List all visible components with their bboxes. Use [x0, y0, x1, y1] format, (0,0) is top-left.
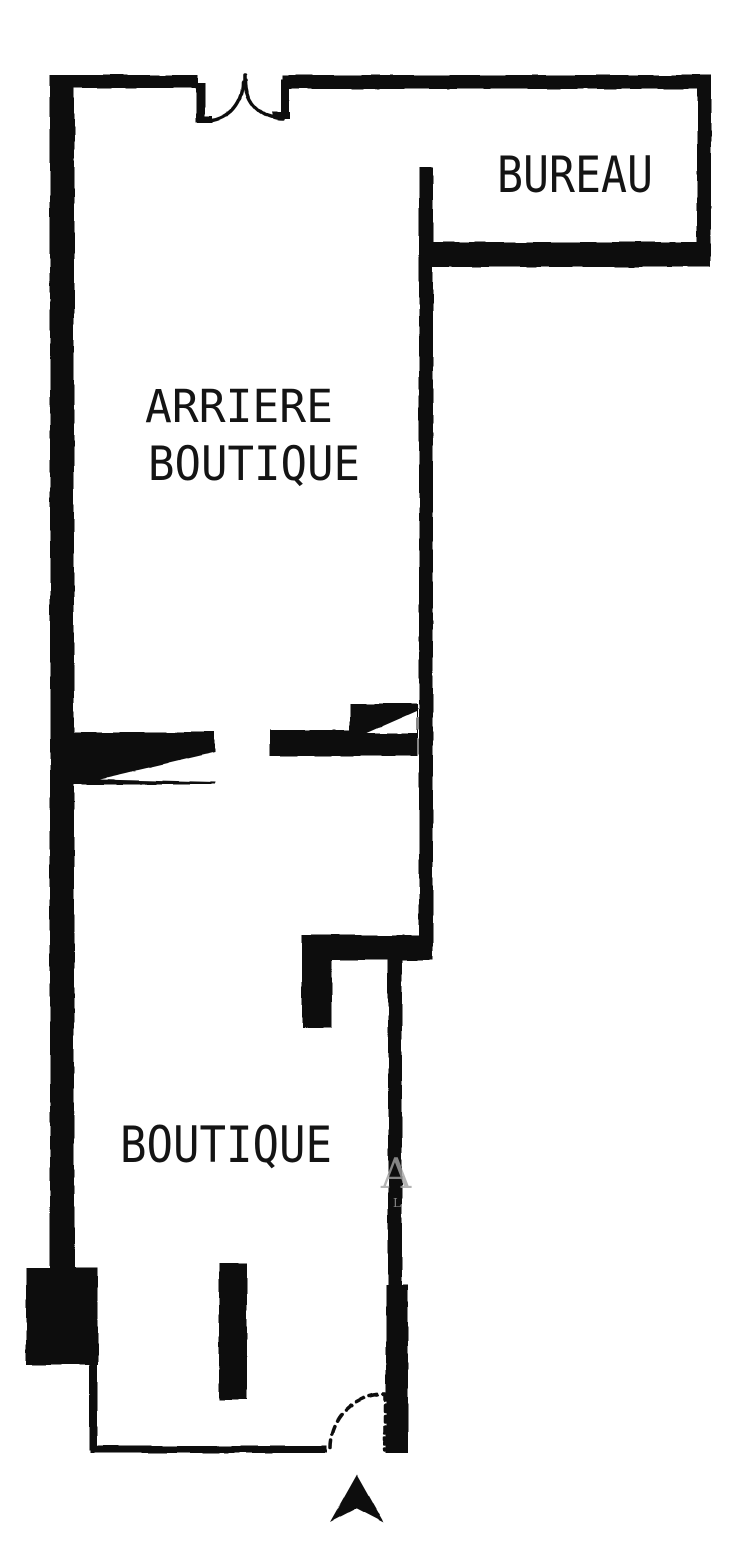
boutique-right-wall-bottom	[386, 1285, 408, 1453]
boutique-right-wall	[388, 958, 402, 1288]
room-label-boutique: BOUTIQUE	[120, 1116, 332, 1174]
left-exterior-wall	[50, 75, 74, 1273]
floor-plan-drawing: BUREAU ARRIERE BOUTIQUE BOUTIQUE A L	[0, 0, 744, 1554]
jog-wall	[302, 935, 433, 960]
north-arrow-icon	[330, 1474, 384, 1522]
top-wall-right	[283, 75, 711, 89]
entry-door-arc	[330, 1394, 384, 1448]
watermark-letter-l: L	[393, 1196, 401, 1210]
stub-wall	[302, 958, 332, 1028]
right-exterior-wall	[697, 75, 711, 267]
double-door-left-arc	[205, 83, 243, 121]
room-label-arriere-boutique-line2: BOUTIQUE	[148, 437, 360, 492]
watermark-letter-a: A	[380, 1149, 412, 1198]
left-front-thin-wall	[89, 1362, 97, 1450]
front-wall	[90, 1446, 327, 1453]
structure	[26, 75, 711, 1522]
room-label-arriere-boutique-line1: ARRIERE	[145, 380, 333, 433]
room-label-bureau: BUREAU	[497, 146, 653, 204]
shop-pillar	[219, 1263, 247, 1400]
bureau-bottom-wall	[421, 242, 711, 267]
door-swings	[205, 76, 385, 1450]
watermark: A L	[380, 1149, 412, 1210]
walls	[26, 75, 711, 1453]
floor-plan-page: BUREAU ARRIERE BOUTIQUE BOUTIQUE A L	[0, 0, 744, 1554]
left-corner-block	[26, 1268, 98, 1365]
interior-spine-wall	[419, 167, 433, 939]
room-labels: BUREAU ARRIERE BOUTIQUE BOUTIQUE	[120, 146, 653, 1174]
